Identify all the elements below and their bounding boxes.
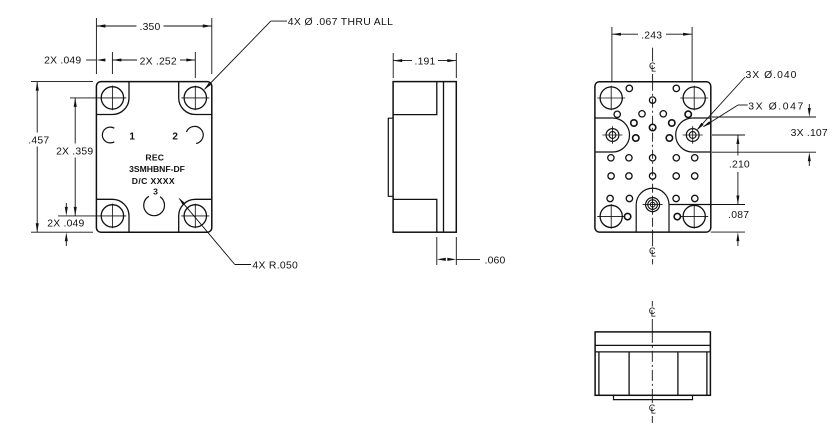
svg-text:L: L [651,309,656,319]
svg-text:.210: .210 [729,160,750,171]
svg-text:2X .252: 2X .252 [140,56,177,67]
svg-text:3X Ø.047: 3X Ø.047 [748,101,805,112]
svg-text:L: L [651,249,656,259]
svg-text:4X Ø .067 THRU ALL: 4X Ø .067 THRU ALL [288,17,393,28]
svg-text:3: 3 [153,187,158,197]
svg-text:.191: .191 [414,57,435,68]
svg-text:2: 2 [172,131,178,142]
svg-text:2X .359: 2X .359 [56,146,93,157]
svg-text:3X Ø.040: 3X Ø.040 [746,70,798,81]
svg-text:L: L [651,406,656,416]
svg-text:L: L [651,64,656,74]
svg-text:.350: .350 [139,22,160,33]
svg-text:.060: .060 [484,256,505,267]
svg-text:.087: .087 [728,210,749,221]
svg-text:D/C XXXX: D/C XXXX [132,176,175,186]
svg-text:.243: .243 [641,30,662,41]
svg-text:REC: REC [145,152,164,162]
svg-text:2X .049: 2X .049 [44,55,81,66]
svg-text:2X .049: 2X .049 [47,219,84,230]
svg-text:1: 1 [129,131,135,142]
svg-text:.457: .457 [28,135,49,146]
svg-text:3SMHBNF-DF: 3SMHBNF-DF [129,164,185,174]
svg-text:3X .107: 3X .107 [791,128,828,139]
svg-text:4X R.050: 4X R.050 [252,261,298,272]
